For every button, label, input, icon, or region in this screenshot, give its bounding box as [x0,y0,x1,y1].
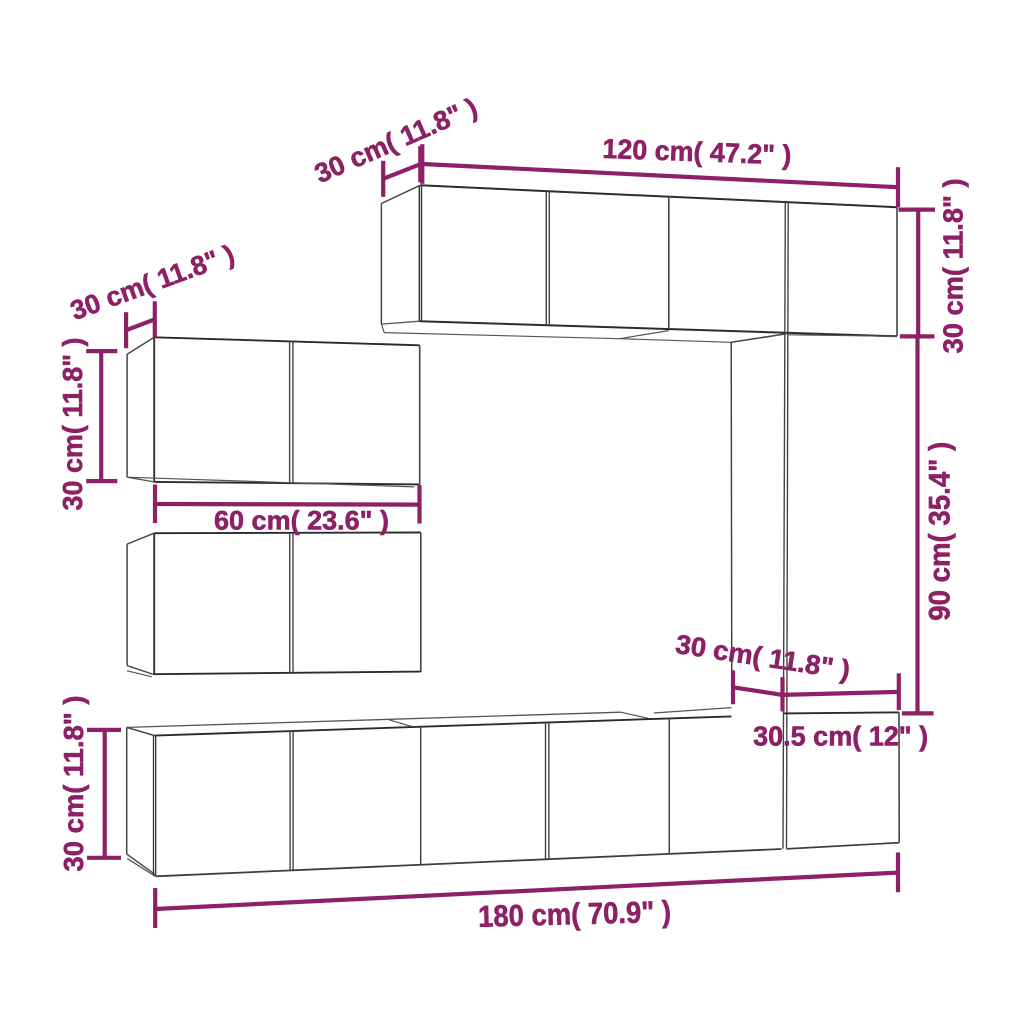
svg-text:60 cm( 23.6" ): 60 cm( 23.6" ) [214,505,389,535]
svg-text:90 cm( 35.4" ): 90 cm( 35.4" ) [924,442,957,621]
svg-text:120 cm( 47.2" ): 120 cm( 47.2" ) [602,133,792,171]
svg-text:30 cm( 11.8" ): 30 cm( 11.8" ) [58,696,89,872]
svg-text:30.5 cm( 12" ): 30.5 cm( 12" ) [753,721,928,752]
svg-text:30 cm( 11.8" ): 30 cm( 11.8" ) [57,338,88,511]
svg-text:180 cm( 70.9" ): 180 cm( 70.9" ) [478,896,672,934]
svg-text:30 cm( 11.8" ): 30 cm( 11.8" ) [937,178,968,353]
